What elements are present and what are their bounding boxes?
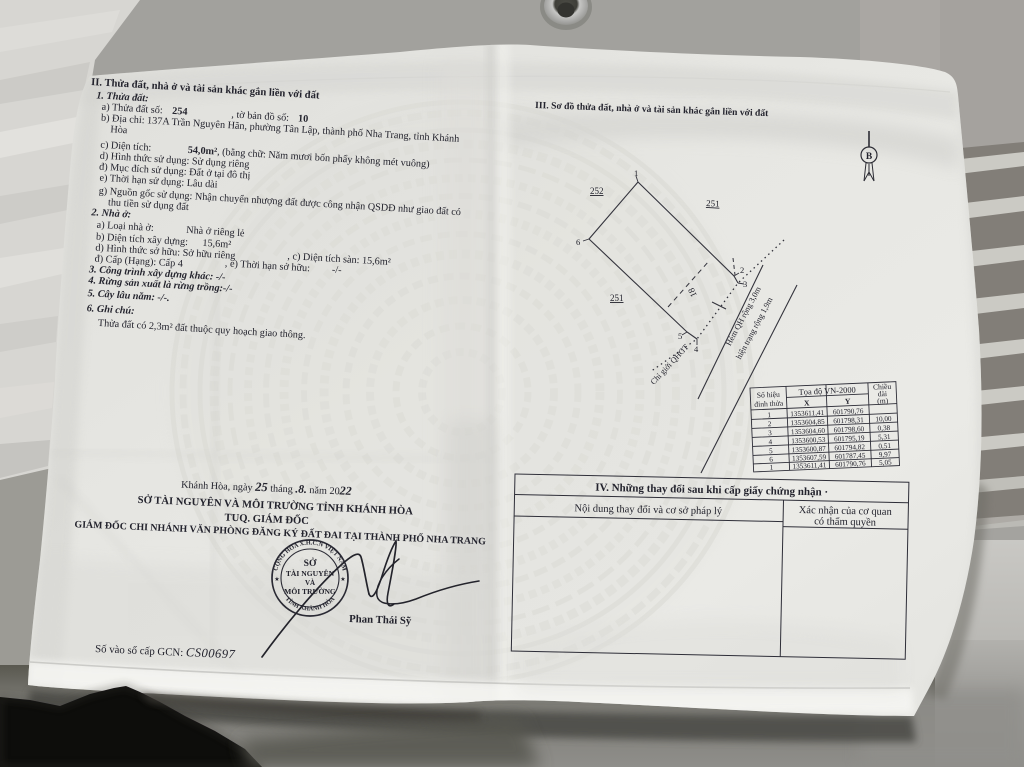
svg-text:1353611,41: 1353611,41 xyxy=(792,461,827,470)
svg-text:TÀI NGUYÊN: TÀI NGUYÊN xyxy=(286,568,335,578)
svg-text:Hòa: Hòa xyxy=(110,124,128,136)
svg-text:601790,76: 601790,76 xyxy=(833,407,864,416)
svg-text:3: 3 xyxy=(743,279,747,289)
svg-text:1353600,53: 1353600,53 xyxy=(791,436,826,445)
svg-text:(m): (m) xyxy=(877,396,889,405)
svg-text:2: 2 xyxy=(740,265,744,275)
svg-text:601795,19: 601795,19 xyxy=(834,434,865,443)
svg-text:601798,31: 601798,31 xyxy=(833,416,864,425)
svg-text:★: ★ xyxy=(274,576,279,583)
svg-text:X: X xyxy=(804,398,810,407)
svg-text:★: ★ xyxy=(340,576,345,583)
svg-text:1353604,60: 1353604,60 xyxy=(791,427,826,436)
svg-text:Y: Y xyxy=(845,397,851,406)
svg-text:251: 251 xyxy=(610,293,624,303)
svg-text:5,05: 5,05 xyxy=(879,458,892,467)
svg-text:1353611,41: 1353611,41 xyxy=(790,409,825,418)
svg-text:251: 251 xyxy=(706,198,720,209)
svg-text:1353604,85: 1353604,85 xyxy=(790,418,825,427)
svg-text:5,31: 5,31 xyxy=(878,433,891,442)
svg-text:0,38: 0,38 xyxy=(877,424,890,433)
svg-text:Phan Thái Sỹ: Phan Thái Sỹ xyxy=(349,613,412,627)
svg-text:0,51: 0,51 xyxy=(878,442,891,451)
svg-text:10,00: 10,00 xyxy=(875,415,892,424)
svg-text:có thẩm quyền: có thẩm quyền xyxy=(814,516,877,528)
svg-text:B: B xyxy=(866,152,873,162)
svg-text:1: 1 xyxy=(634,168,638,178)
svg-text:6: 6 xyxy=(576,237,580,247)
svg-text:252: 252 xyxy=(590,186,604,196)
svg-text:601790,76: 601790,76 xyxy=(835,460,866,469)
svg-text:5: 5 xyxy=(678,331,682,341)
svg-text:đỉnh thửa: đỉnh thửa xyxy=(754,399,784,409)
svg-text:MÔI TRƯỜNG: MÔI TRƯỜNG xyxy=(284,586,336,596)
svg-text:SỞ: SỞ xyxy=(304,557,317,569)
svg-text:VÀ: VÀ xyxy=(305,579,315,587)
svg-text:601798,60: 601798,60 xyxy=(833,425,864,434)
